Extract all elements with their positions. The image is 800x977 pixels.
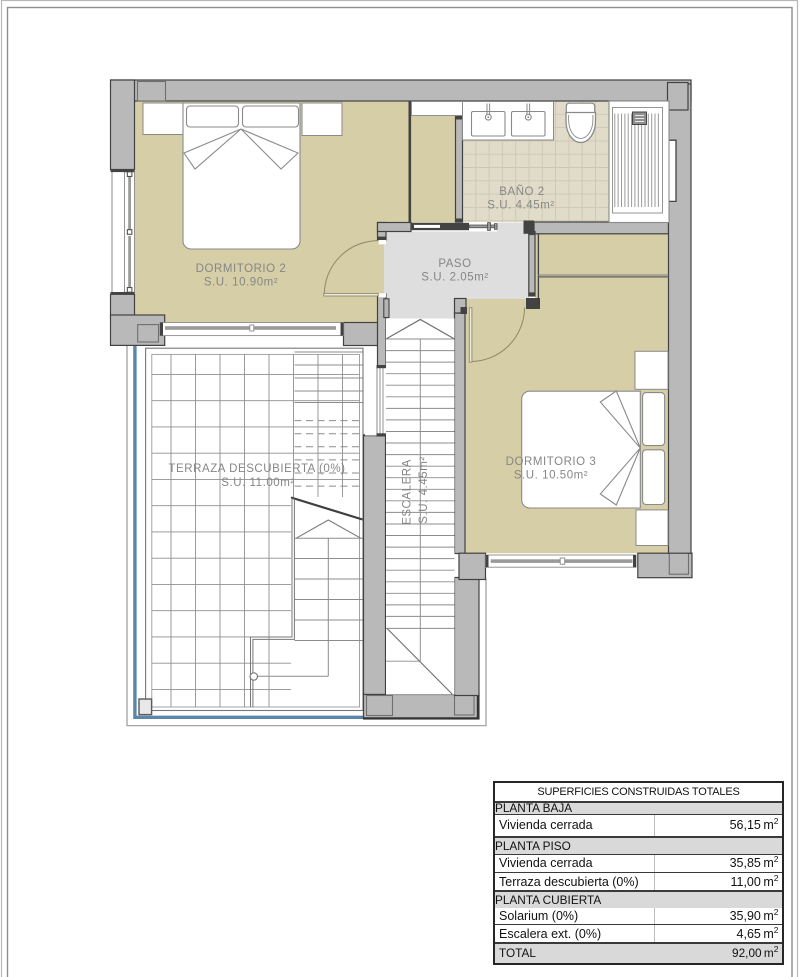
svg-text:ESCALERA: ESCALERA [402, 459, 414, 525]
svg-text:PASO: PASO [438, 258, 471, 270]
svg-text:S.U. 11.00m²: S.U. 11.00m² [221, 477, 295, 489]
svg-text:S.U. 10.90m²: S.U. 10.90m² [204, 277, 278, 289]
svg-text:S.U. 4.45m²: S.U. 4.45m² [418, 456, 430, 523]
svg-text:S.U. 10.50m²: S.U. 10.50m² [514, 470, 588, 482]
svg-text:DORMITORIO 3: DORMITORIO 3 [506, 456, 597, 468]
svg-text:TERRAZA DESCUBIERTA (0%): TERRAZA DESCUBIERTA (0%) [168, 463, 345, 475]
svg-text:S.U. 4.45m²: S.U. 4.45m² [487, 199, 554, 211]
svg-text:DORMITORIO 2: DORMITORIO 2 [196, 263, 287, 275]
svg-text:BAÑO 2: BAÑO 2 [499, 185, 544, 198]
svg-text:S.U. 2.05m²: S.U. 2.05m² [421, 272, 488, 284]
